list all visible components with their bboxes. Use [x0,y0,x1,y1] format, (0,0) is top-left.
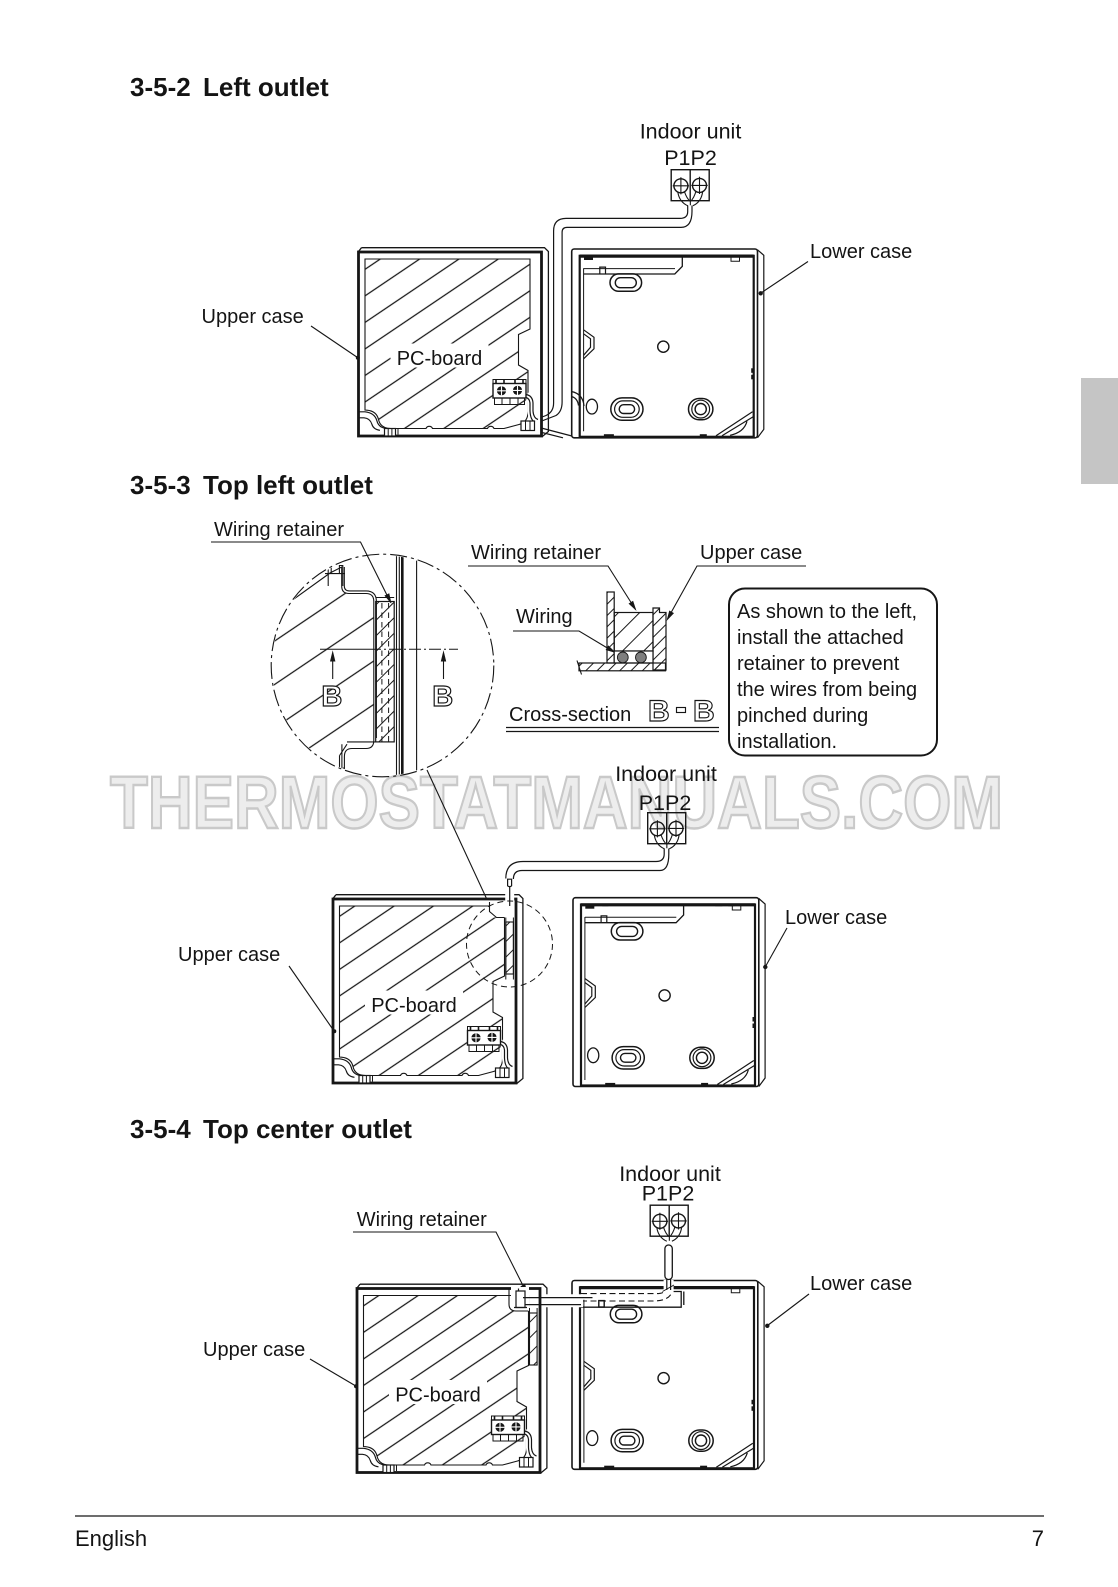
svg-text:Indoor unit: Indoor unit [640,120,742,144]
svg-text:7: 7 [1032,1526,1044,1551]
svg-text:installation.: installation. [737,731,837,753]
svg-text:As shown to the left,: As shown to the left, [737,601,917,623]
svg-text:retainer to prevent: retainer to prevent [737,653,900,675]
svg-text:Upper case: Upper case [700,542,802,564]
svg-text:Upper case: Upper case [202,306,304,328]
svg-text:Wiring retainer: Wiring retainer [471,542,601,564]
svg-text:B: B [432,681,453,713]
svg-text:P1P2: P1P2 [664,146,717,170]
svg-text:Top left outlet: Top left outlet [203,470,373,500]
svg-text:Upper case: Upper case [203,1339,305,1361]
svg-text:pinched during: pinched during [737,705,868,727]
svg-text:B: B [321,681,342,713]
svg-text:Lower case: Lower case [810,241,912,263]
svg-text:THERMOSTATMANUALS.COM: THERMOSTATMANUALS.COM [110,761,1003,844]
svg-text:install the attached: install the attached [737,627,904,649]
svg-text:the wires from being: the wires from being [737,679,917,701]
svg-text:Cross-section: Cross-section [509,704,631,726]
svg-text:B: B [648,695,670,728]
svg-text:Lower case: Lower case [810,1273,912,1295]
svg-text:Left outlet: Left outlet [203,72,329,102]
svg-text:B: B [693,695,715,728]
svg-text:Wiring retainer: Wiring retainer [214,519,344,541]
svg-text:Indoor unit: Indoor unit [615,762,717,786]
svg-text:Top center outlet: Top center outlet [203,1114,412,1144]
svg-text:3-5-3: 3-5-3 [130,470,191,500]
svg-text:Wiring retainer: Wiring retainer [357,1209,487,1231]
svg-text:Wiring: Wiring [516,606,573,628]
svg-text:P1P2: P1P2 [642,1182,695,1206]
svg-text:P1P2: P1P2 [639,791,692,815]
svg-text:Lower case: Lower case [785,907,887,929]
svg-text:3-5-4: 3-5-4 [130,1114,191,1144]
svg-text:Upper case: Upper case [178,944,280,966]
svg-text:English: English [75,1526,147,1551]
svg-text:3-5-2: 3-5-2 [130,72,191,102]
